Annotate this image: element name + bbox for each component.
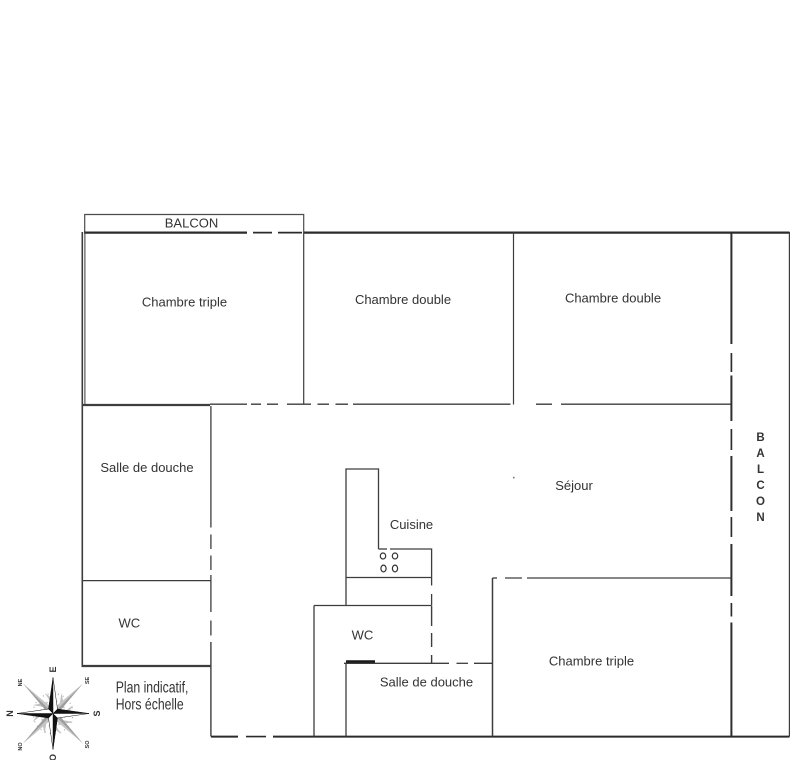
svg-text:Salle de douche: Salle de douche: [380, 675, 473, 690]
svg-text:A: A: [756, 448, 764, 460]
svg-text:Chambre triple: Chambre triple: [142, 295, 227, 310]
svg-text:L: L: [757, 464, 764, 476]
svg-text:NO: NO: [18, 742, 24, 751]
svg-text:WC: WC: [352, 628, 374, 643]
svg-text:Chambre triple: Chambre triple: [549, 654, 634, 669]
svg-text:WC: WC: [118, 615, 140, 630]
svg-text:Salle de douche: Salle de douche: [100, 460, 193, 475]
svg-text:Hors échelle: Hors échelle: [116, 696, 184, 714]
svg-text:E: E: [48, 666, 58, 672]
svg-text:Chambre double: Chambre double: [565, 290, 661, 305]
svg-text:N: N: [756, 512, 764, 524]
svg-text:B: B: [756, 432, 764, 444]
svg-text:O: O: [48, 754, 58, 760]
svg-text:Plan indicatif,: Plan indicatif,: [116, 679, 189, 697]
svg-text:SE: SE: [85, 677, 91, 685]
svg-text:O: O: [756, 496, 765, 508]
svg-text:C: C: [756, 480, 764, 492]
svg-text:SO: SO: [85, 740, 91, 749]
svg-text:Séjour: Séjour: [555, 478, 593, 493]
svg-text:Cuisine: Cuisine: [390, 517, 433, 532]
svg-text:N: N: [5, 710, 15, 717]
svg-text:S: S: [92, 710, 102, 716]
svg-text:BALCON: BALCON: [165, 216, 218, 231]
svg-text:Chambre double: Chambre double: [355, 292, 451, 307]
svg-text:NE: NE: [18, 678, 24, 686]
